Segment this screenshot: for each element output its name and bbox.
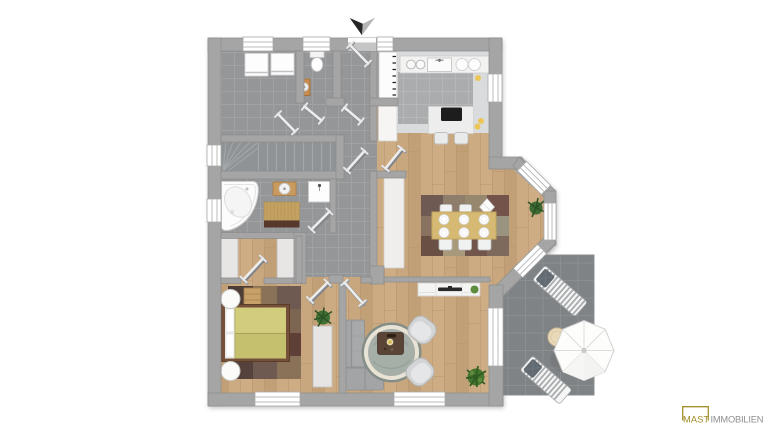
svg-text:MAST: MAST xyxy=(683,415,709,425)
svg-text:IMMOBILIEN: IMMOBILIEN xyxy=(711,415,764,425)
